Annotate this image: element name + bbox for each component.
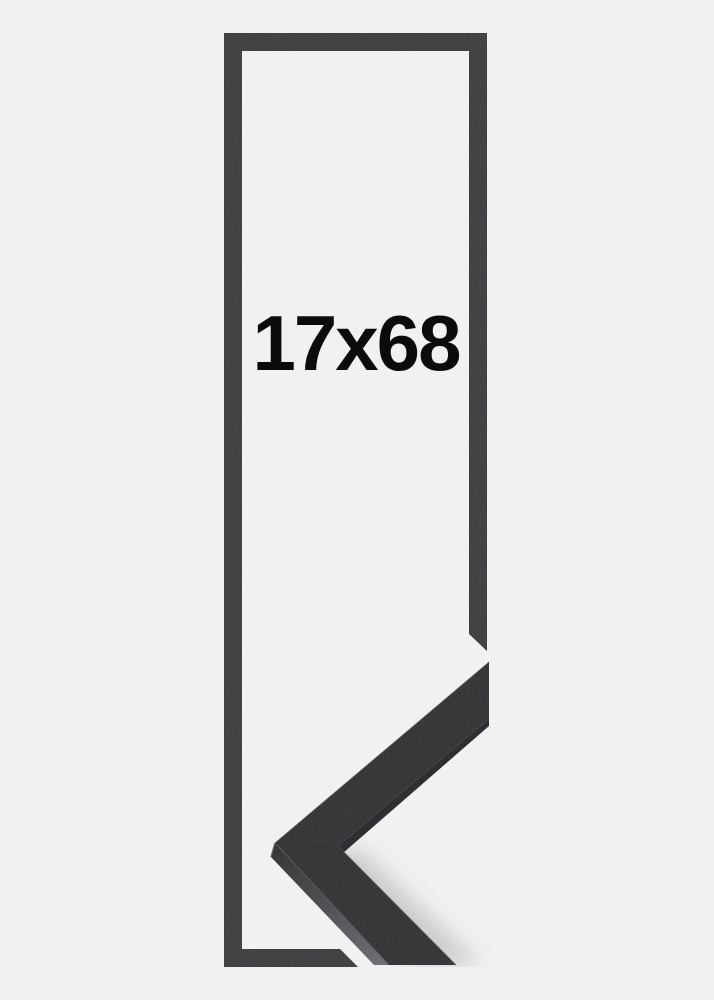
frame-product-image: 17x68	[0, 0, 714, 1000]
frame-product-photo: 17x68	[0, 0, 714, 1000]
size-label: 17x68	[253, 299, 460, 387]
